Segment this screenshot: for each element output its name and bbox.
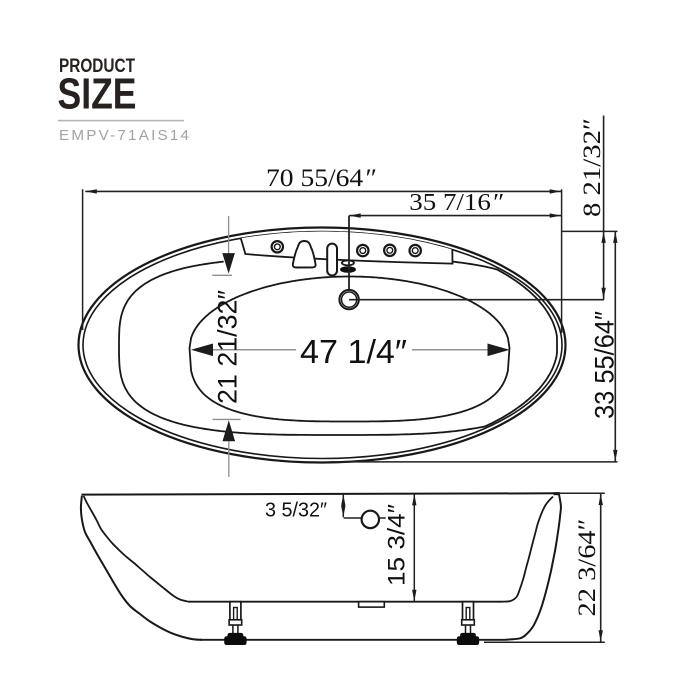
svg-text:EMPV-71AIS14: EMPV-71AIS14 — [59, 127, 189, 144]
svg-text:21 21/32″: 21 21/32″ — [213, 290, 243, 404]
svg-text:33 55/64″: 33 55/64″ — [590, 311, 620, 419]
svg-text:22 3/64″: 22 3/64″ — [574, 519, 601, 617]
svg-text:70 55/64 ″: 70 55/64 ″ — [266, 165, 377, 192]
svg-text:35 7/16 ″: 35 7/16 ″ — [409, 190, 504, 216]
svg-text:SIZE: SIZE — [58, 70, 137, 119]
svg-text:3 5/32″: 3 5/32″ — [265, 500, 327, 522]
svg-text:47 1/4″: 47 1/4″ — [300, 333, 407, 370]
svg-text:8 21/32″: 8 21/32″ — [579, 118, 606, 217]
svg-text:15 3/4″: 15 3/4″ — [384, 503, 411, 586]
